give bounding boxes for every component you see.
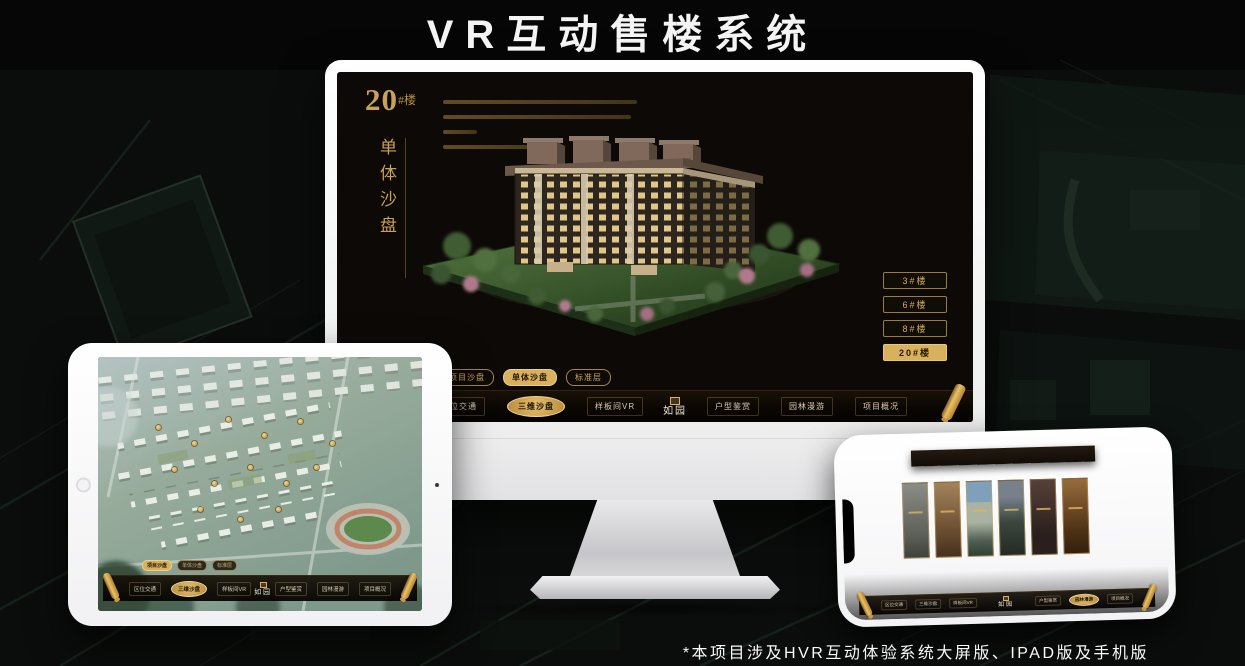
scene-panel[interactable] (902, 482, 930, 559)
floor-button-6#楼[interactable]: 6#楼 (883, 296, 947, 313)
seal-icon (1003, 596, 1009, 601)
monitor-shadow (445, 601, 865, 617)
monitor-stand-base (530, 576, 780, 599)
building-badge[interactable] (212, 481, 217, 486)
sandbox-subtab-group: 项目沙盘单体沙盘标准层 (440, 369, 611, 386)
nav-group-left: 区位交通三维沙盘样板间VR (433, 396, 643, 417)
nav-item-园林漫游[interactable]: 园林漫游 (317, 582, 349, 596)
nav-item-样板间VR[interactable]: 样板间VR (949, 598, 977, 609)
subtab-单体沙盘[interactable]: 单体沙盘 (177, 560, 207, 571)
app-logo-text: 如园 (663, 407, 687, 417)
building-badge[interactable] (226, 417, 231, 422)
scene-panel-strip (902, 478, 1090, 559)
floor-button-20#楼[interactable]: 20#楼 (883, 344, 947, 361)
page-title: VR互动售楼系统 (0, 2, 1245, 60)
tablet-home-button[interactable] (76, 477, 91, 492)
building-badge[interactable] (192, 441, 197, 446)
app-logo: 如园 (254, 582, 272, 596)
nav-item-区位交通[interactable]: 区位交通 (881, 600, 907, 611)
building-badge[interactable] (314, 465, 319, 470)
phone-notch (842, 499, 855, 563)
scroll-ornament-icon[interactable] (940, 383, 967, 422)
scene-panel[interactable] (966, 480, 994, 557)
poster-canvas: VR互动售楼系统 *本项目涉及HVR互动体验系统大屏版、IPAD版及手机版 20… (0, 0, 1245, 666)
tablet-device: 项目沙盘单体沙盘标准层 区位交通三维沙盘样板间VR 如园 户型鉴赏园林漫游项目概… (68, 343, 452, 626)
footnote-caption: *本项目涉及HVR互动体验系统大屏版、IPAD版及手机版 (683, 639, 1149, 663)
nav-item-户型鉴赏[interactable]: 户型鉴赏 (1035, 595, 1061, 606)
nav-item-户型鉴赏[interactable]: 户型鉴赏 (275, 582, 307, 596)
building-number-title: 20#楼 (365, 82, 416, 118)
seal-icon (260, 582, 267, 588)
subtab-单体沙盘[interactable]: 单体沙盘 (503, 369, 557, 386)
aerial-masterplan-render (98, 357, 422, 611)
building-badge[interactable] (248, 465, 253, 470)
seal-icon (670, 397, 680, 405)
building-badge[interactable] (172, 467, 177, 472)
nav-group-right: 户型鉴赏园林漫游项目概况 (707, 397, 907, 416)
building-badge[interactable] (330, 441, 335, 446)
scene-backdrop (911, 445, 1095, 466)
floor-button-group: 3#楼6#楼8#楼20#楼 (883, 272, 947, 361)
nav-item-户型鉴赏[interactable]: 户型鉴赏 (707, 397, 759, 416)
building-badge[interactable] (238, 517, 243, 522)
nav-group-left: 区位交通三维沙盘样板间VR (129, 581, 251, 597)
nav-item-园林漫游[interactable]: 园林漫游 (1069, 593, 1099, 606)
building-badge[interactable] (298, 419, 303, 424)
tablet-subtab-group: 项目沙盘单体沙盘标准层 (142, 560, 237, 571)
subtab-标准层[interactable]: 标准层 (566, 369, 611, 386)
scene-panel[interactable] (1030, 479, 1058, 556)
building-badge[interactable] (198, 507, 203, 512)
nav-item-项目概况[interactable]: 项目概况 (855, 397, 907, 416)
scroll-ornament-icon[interactable] (102, 572, 121, 601)
nav-item-样板间VR[interactable]: 样板间VR (217, 582, 251, 596)
nav-group-right: 户型鉴赏园林漫游项目概况 (275, 582, 391, 596)
phone-screen: 区位交通三维沙盘样板间VR 如园 户型鉴赏园林漫游项目概况 (841, 434, 1170, 621)
app-logo-text: 如园 (998, 602, 1014, 608)
tablet-bottom-nav: 区位交通三维沙盘样板间VR 如园 户型鉴赏园林漫游项目概况 (103, 575, 417, 601)
building-model-render (415, 124, 845, 354)
phone-device: 区位交通三维沙盘样板间VR 如园 户型鉴赏园林漫游项目概况 (833, 426, 1176, 627)
floor-button-8#楼[interactable]: 8#楼 (883, 320, 947, 337)
subtab-项目沙盘[interactable]: 项目沙盘 (142, 560, 172, 571)
scroll-ornament-icon[interactable] (400, 572, 419, 601)
nav-item-区位交通[interactable]: 区位交通 (129, 582, 161, 596)
nav-group-right: 户型鉴赏园林漫游项目概况 (1035, 592, 1133, 607)
tablet-screen: 项目沙盘单体沙盘标准层 区位交通三维沙盘样板间VR 如园 户型鉴赏园林漫游项目概… (98, 357, 422, 611)
app-logo: 如园 (998, 596, 1014, 608)
building-badge[interactable] (276, 507, 281, 512)
scene-panel[interactable] (1062, 478, 1090, 555)
nav-item-项目概况[interactable]: 项目概况 (1107, 593, 1133, 604)
subtab-标准层[interactable]: 标准层 (212, 560, 237, 571)
nav-item-三维沙盘[interactable]: 三维沙盘 (915, 599, 941, 610)
building-badge[interactable] (156, 425, 161, 430)
nav-item-项目概况[interactable]: 项目概况 (359, 582, 391, 596)
nav-item-三维沙盘[interactable]: 三维沙盘 (507, 396, 565, 417)
monitor-stand-neck (570, 500, 740, 576)
floor-button-3#楼[interactable]: 3#楼 (883, 272, 947, 289)
building-badge[interactable] (284, 481, 289, 486)
building-badge[interactable] (262, 433, 267, 438)
app-logo: 如园 (663, 397, 687, 417)
sandbox-subtitle: 单体沙盘 (374, 138, 406, 278)
scene-panel[interactable] (998, 479, 1026, 556)
scene-panel[interactable] (934, 481, 962, 558)
nav-item-样板间VR[interactable]: 样板间VR (587, 397, 643, 416)
nav-group-left: 区位交通三维沙盘样板间VR (881, 598, 977, 611)
tablet-camera-dot (435, 483, 439, 487)
nav-item-园林漫游[interactable]: 园林漫游 (781, 397, 833, 416)
nav-item-三维沙盘[interactable]: 三维沙盘 (171, 581, 207, 597)
app-logo-text: 如园 (254, 589, 272, 596)
